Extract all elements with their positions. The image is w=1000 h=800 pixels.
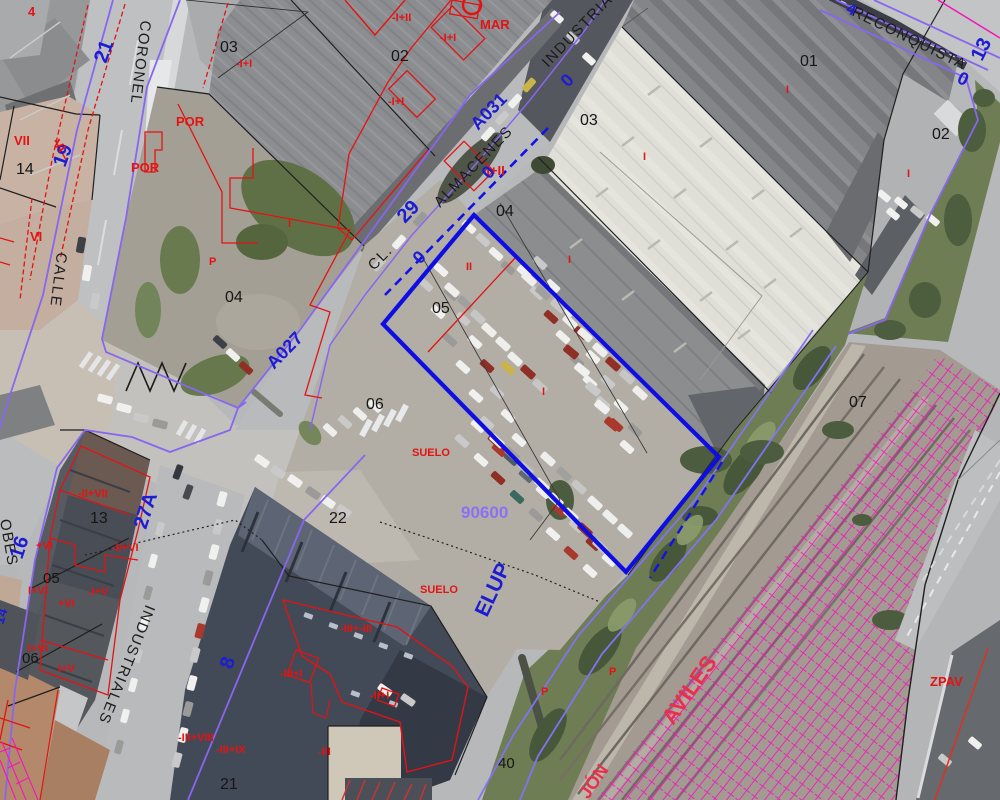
svg-text:90600: 90600 <box>461 503 508 522</box>
svg-text:I+VI: I+VI <box>28 585 48 597</box>
svg-text:-I+I: -I+I <box>236 58 252 70</box>
svg-text:+VI: +VI <box>58 598 75 610</box>
svg-text:-I+I: -I+I <box>440 32 456 44</box>
svg-text:MAR: MAR <box>480 17 510 32</box>
svg-text:I: I <box>542 386 545 398</box>
svg-text:03: 03 <box>580 112 598 129</box>
svg-text:I: I <box>786 84 789 96</box>
svg-text:01: 01 <box>800 53 818 70</box>
svg-text:-III+I: -III+I <box>280 668 302 680</box>
svg-text:-II+I: -II+I <box>370 690 389 702</box>
svg-text:4: 4 <box>28 4 36 19</box>
svg-text:21: 21 <box>220 776 238 793</box>
svg-text:P: P <box>541 686 548 698</box>
svg-text:-III: -III <box>318 746 331 758</box>
svg-text:06: 06 <box>366 396 384 413</box>
svg-text:+VI: +VI <box>36 540 53 552</box>
svg-text:14: 14 <box>16 161 34 178</box>
svg-text:04: 04 <box>225 289 243 306</box>
svg-text:I+VI: I+VI <box>28 643 48 655</box>
svg-text:VI: VI <box>30 229 42 244</box>
svg-text:I: I <box>568 254 571 266</box>
svg-text:-II+VI: -II+VI <box>112 542 139 554</box>
svg-text:04: 04 <box>496 203 514 220</box>
svg-text:02: 02 <box>932 126 950 143</box>
svg-text:05: 05 <box>432 300 450 317</box>
svg-text:ZPAV: ZPAV <box>930 674 963 689</box>
svg-text:SUELO: SUELO <box>420 584 458 596</box>
svg-text:P: P <box>609 666 616 678</box>
svg-text:P: P <box>209 256 216 268</box>
svg-text:40: 40 <box>498 755 515 772</box>
svg-text:22: 22 <box>329 510 347 527</box>
svg-text:-III+VIII: -III+VIII <box>178 732 214 744</box>
svg-text:-II+VII: -II+VII <box>78 488 108 500</box>
svg-text:13: 13 <box>90 510 108 527</box>
svg-text:02: 02 <box>391 48 409 65</box>
svg-text:-III+-III: -III+-III <box>340 623 372 635</box>
svg-text:POR: POR <box>176 114 205 129</box>
svg-text:-I+I: -I+I <box>388 96 404 108</box>
svg-text:-I+II: -I+II <box>392 12 411 24</box>
svg-text:I: I <box>907 168 910 180</box>
svg-text:II: II <box>466 261 472 273</box>
svg-text:I+V: I+V <box>58 663 75 675</box>
svg-text:03: 03 <box>220 39 238 56</box>
svg-text:I: I <box>643 151 646 163</box>
svg-text:POR: POR <box>131 160 160 175</box>
svg-text:SUELO: SUELO <box>412 447 450 459</box>
svg-text:I: I <box>288 218 291 230</box>
svg-text:VII: VII <box>14 133 30 148</box>
svg-text:07: 07 <box>849 394 867 411</box>
svg-text:-III+IX: -III+IX <box>216 744 246 756</box>
svg-text:-I+V: -I+V <box>88 586 109 598</box>
